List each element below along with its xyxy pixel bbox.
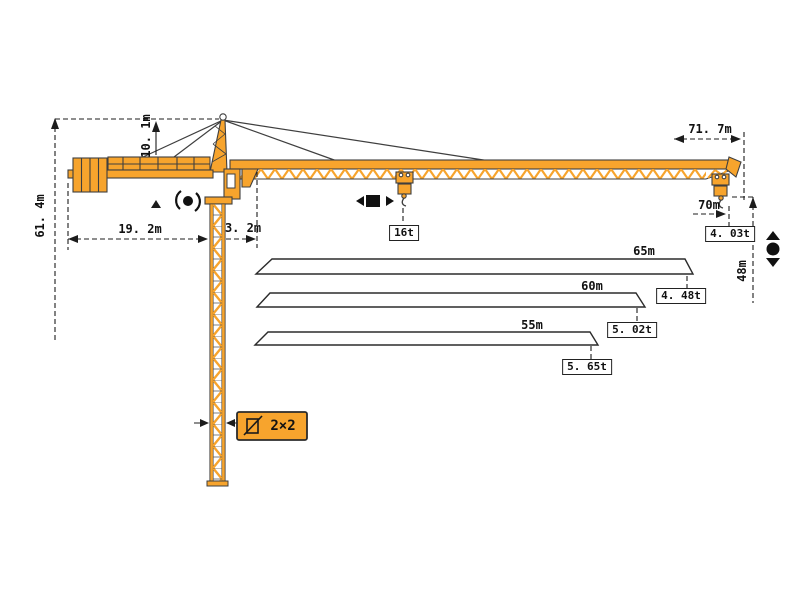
mast-section-label: 2×2 bbox=[270, 418, 295, 434]
mast-base bbox=[207, 481, 228, 486]
trolley-travel-icon bbox=[356, 195, 394, 207]
counter-jib bbox=[68, 157, 213, 192]
jib-60m-label: 60m bbox=[581, 279, 603, 293]
jib-bar-60m bbox=[257, 293, 645, 307]
jib-55m-load-badge: 5. 65t bbox=[562, 359, 612, 375]
main-jib bbox=[230, 157, 741, 187]
jib-60m-load-badge: 5. 02t bbox=[607, 322, 657, 338]
hoist-up-down-icon bbox=[766, 231, 780, 267]
operator-cab bbox=[224, 169, 240, 199]
dim-max-radius-label: 71. 7m bbox=[688, 122, 731, 136]
tower-mast bbox=[207, 204, 228, 486]
dim-total-height-label: 61. 4m bbox=[33, 194, 47, 237]
dim-tip-radius-label: 70m bbox=[698, 198, 720, 212]
dim-counter-jib-label: 19. 2m bbox=[118, 222, 161, 236]
rotation-icon bbox=[176, 191, 200, 211]
slewing-collar bbox=[205, 197, 232, 204]
jib-65m-label: 65m bbox=[633, 244, 655, 258]
dim-head-height-label: 10. 1m bbox=[139, 114, 153, 157]
trolley-mid bbox=[396, 172, 413, 206]
jib-65m-load-badge: 4. 48t bbox=[656, 288, 706, 304]
jib-bar-55m bbox=[255, 332, 598, 345]
crane-diagram: 61. 4m 10. 1m 19. 2m 3. 2m 71. 7m 70m 48… bbox=[0, 0, 800, 600]
tip-load-badge: 4. 03t bbox=[705, 226, 755, 242]
tie-bars bbox=[143, 120, 490, 161]
dim-hook-height-label: 48m bbox=[735, 260, 749, 282]
dim-pivot-offset-label: 3. 2m bbox=[225, 221, 261, 235]
max-load-badge: 16t bbox=[389, 225, 419, 241]
cab-window bbox=[227, 174, 235, 188]
jib-bar-65m bbox=[256, 259, 693, 274]
hook-mid bbox=[402, 194, 406, 198]
apex-pulley bbox=[220, 114, 226, 120]
jib-55m-label: 55m bbox=[521, 318, 543, 332]
